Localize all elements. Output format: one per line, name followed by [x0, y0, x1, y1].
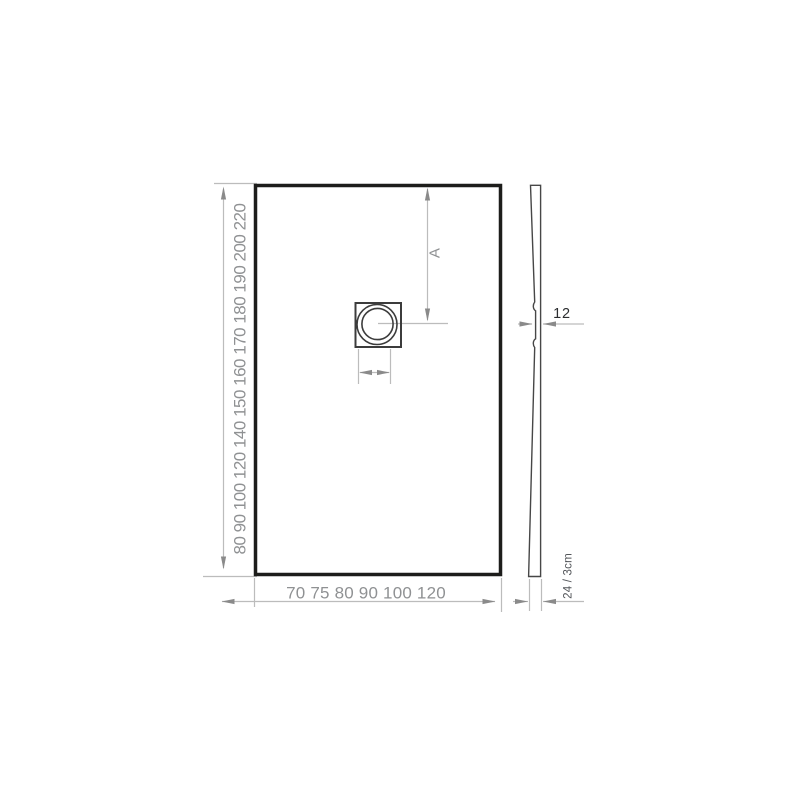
drawing-linework: [0, 0, 800, 800]
arrow-right-icon: [377, 370, 390, 375]
dimension-arrowheads: [221, 187, 556, 605]
drain-thickness-label: 12: [553, 307, 571, 322]
arrow-left-icon: [543, 321, 556, 326]
tray-outline-front-view: [256, 186, 501, 575]
arrow-up-icon: [221, 187, 226, 200]
drain: [356, 303, 402, 347]
tray-outline-side-profile: [529, 185, 541, 576]
arrow-up-icon: [425, 188, 430, 201]
arrow-right-icon: [520, 321, 533, 326]
drain-outer-circle: [357, 305, 397, 345]
arrow-right-icon: [515, 599, 528, 604]
length-options-scale: 80 90 100 120 140 150 160 170 180 190 20…: [232, 204, 249, 555]
arrow-down-icon: [221, 557, 226, 570]
technical-drawing-shower-tray: 80 90 100 120 140 150 160 170 180 190 20…: [0, 0, 800, 800]
edge-thickness-label: 24 / 3cm: [563, 553, 575, 599]
drain-distance-label: A: [428, 248, 443, 258]
arrow-left-icon: [543, 599, 556, 604]
arrow-right-icon: [483, 599, 496, 604]
width-options-scale: 70 75 80 90 100 120: [286, 585, 446, 602]
arrow-down-icon: [425, 309, 430, 322]
arrow-left-icon: [359, 370, 372, 375]
arrow-left-icon: [222, 599, 235, 604]
dimension-lines: [203, 184, 584, 613]
